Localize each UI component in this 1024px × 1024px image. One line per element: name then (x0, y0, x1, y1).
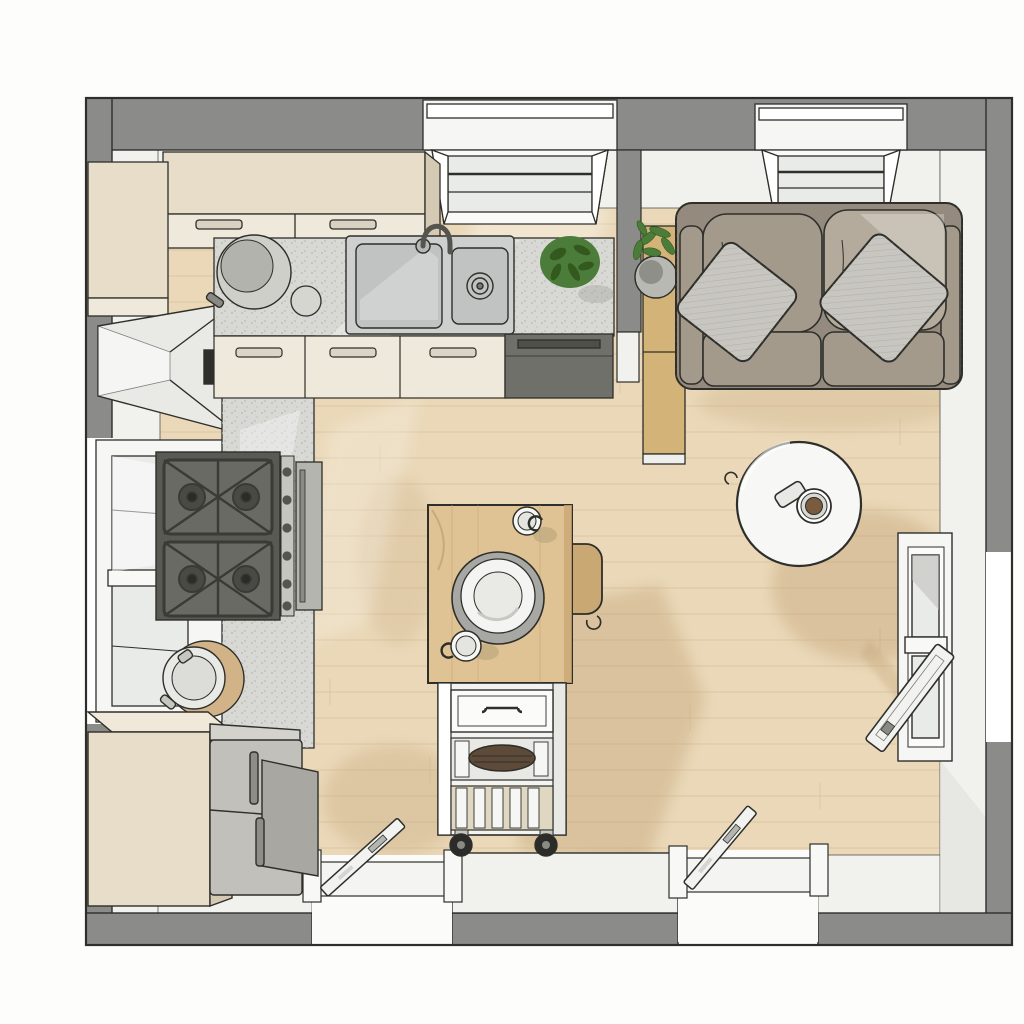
door-jamb (444, 850, 462, 902)
door-jamb (669, 846, 687, 898)
double-basin-sink (346, 226, 514, 334)
bottom-wall-face-right (818, 855, 940, 915)
upper-cabinets (163, 152, 440, 248)
bottom-wall-stub (452, 853, 678, 913)
upper-cabinet-left (88, 162, 168, 316)
door-opening-right (669, 844, 828, 942)
floor-plan-svg (0, 0, 1024, 1024)
bottom-wall-center (452, 913, 678, 945)
bottom-wall-right (818, 913, 1012, 945)
refrigerator (210, 724, 318, 895)
cabinet-handle (330, 220, 376, 229)
sofa (674, 203, 962, 389)
dishwasher (505, 334, 613, 398)
cabinet-handle (196, 220, 242, 229)
counter-bowl (291, 286, 321, 316)
cart-body (438, 683, 566, 856)
bottom-wall-left (86, 913, 312, 945)
window-top-2 (755, 104, 907, 214)
window-top-1 (423, 100, 617, 224)
right-wall (986, 98, 1012, 945)
burner-grate-1 (164, 460, 272, 534)
island-drawer (451, 690, 553, 732)
oven-handle (300, 470, 305, 602)
drawer-handle (236, 348, 282, 357)
door-opening-left (303, 850, 462, 945)
oven-door (296, 462, 322, 610)
dinner-plate (452, 552, 544, 644)
island-middle-shelf (451, 738, 553, 780)
gas-cooktop (156, 452, 322, 620)
dishwasher-handle (518, 340, 600, 348)
floor-plan-image (0, 0, 1024, 1024)
hood-vent-slot (204, 350, 213, 384)
drawer-handle (330, 348, 376, 357)
burner-grate-2 (164, 542, 272, 616)
island-slatted-shelf (451, 786, 553, 830)
fridge-handle (250, 752, 258, 804)
base-cabinet-fronts (214, 336, 505, 398)
door-jamb (810, 844, 828, 896)
drawer-handle (430, 348, 476, 357)
control-panel (281, 456, 294, 616)
fridge-handle (256, 818, 264, 866)
